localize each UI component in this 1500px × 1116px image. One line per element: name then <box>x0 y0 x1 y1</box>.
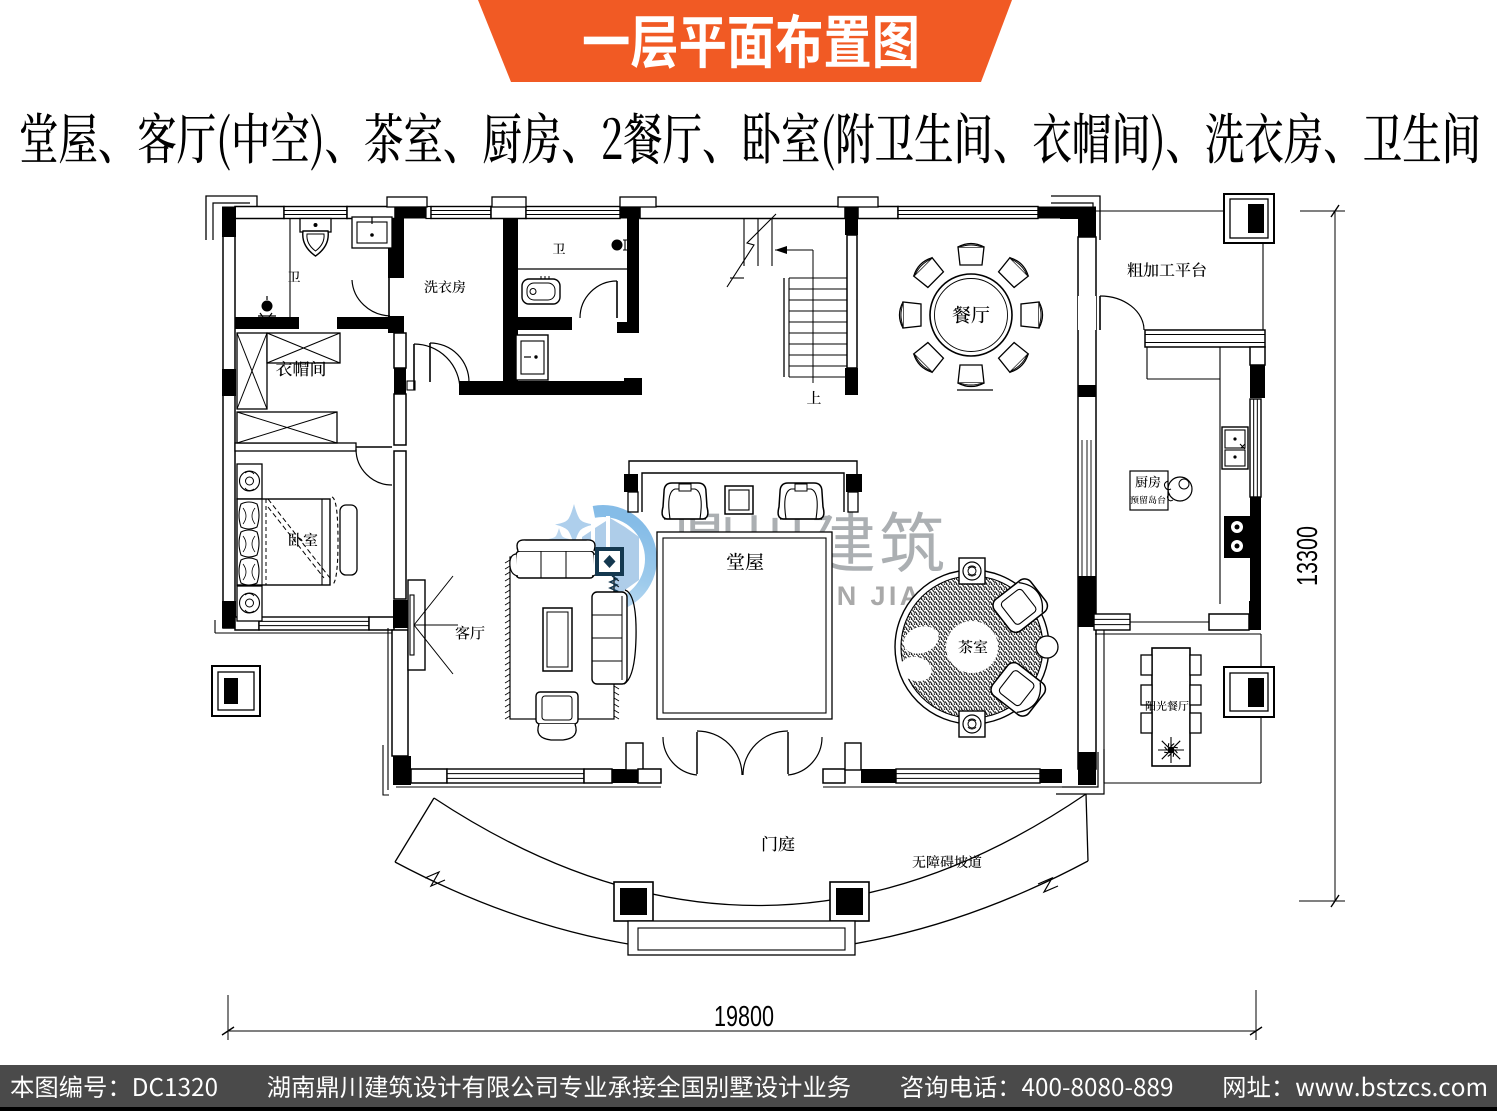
svg-text:19800: 19800 <box>714 1001 774 1033</box>
svg-text:13300: 13300 <box>1292 526 1324 586</box>
